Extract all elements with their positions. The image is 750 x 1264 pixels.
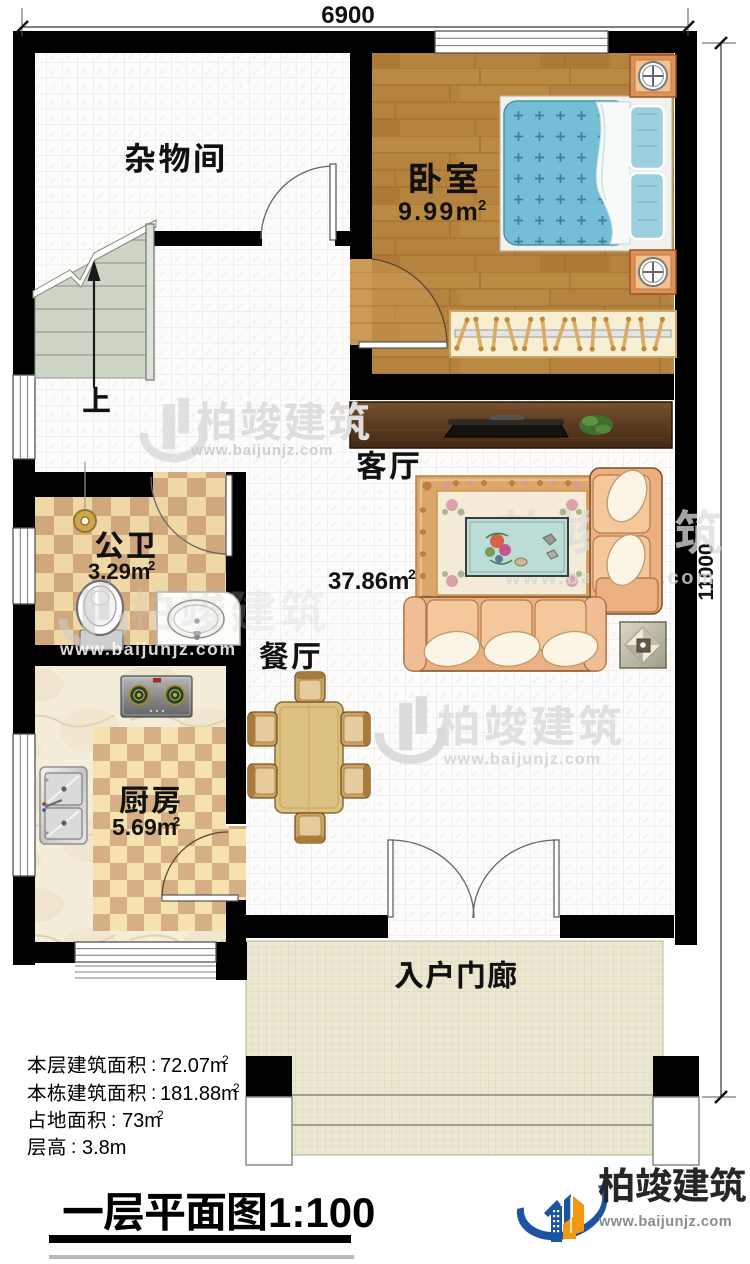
svg-text:6900: 6900	[321, 2, 374, 29]
svg-text:3.29m: 3.29m	[88, 559, 150, 584]
svg-text::: :	[111, 1110, 116, 1131]
svg-text::: :	[151, 1083, 156, 1104]
svg-text:2: 2	[173, 814, 180, 829]
svg-text::: :	[151, 1055, 156, 1076]
svg-text:2: 2	[408, 566, 416, 582]
svg-text:2: 2	[233, 1081, 240, 1095]
svg-text:72.07m: 72.07m	[160, 1055, 227, 1077]
svg-text::: :	[71, 1137, 76, 1158]
svg-text:3.8m: 3.8m	[82, 1137, 126, 1159]
svg-text:2: 2	[222, 1053, 229, 1067]
svg-text:www.baijunjz.com: www.baijunjz.com	[598, 1214, 732, 1230]
svg-text:2: 2	[478, 197, 486, 214]
svg-text:73m: 73m	[122, 1110, 161, 1132]
svg-text:181.88m: 181.88m	[160, 1083, 238, 1105]
svg-text:www.baijunjz.com: www.baijunjz.com	[59, 639, 237, 659]
svg-text:37.86m: 37.86m	[328, 568, 409, 595]
svg-text:www.baijunjz.com: www.baijunjz.com	[190, 442, 333, 459]
svg-text:9.99m: 9.99m	[398, 198, 480, 226]
svg-text:5.69m: 5.69m	[112, 814, 177, 840]
svg-text:2: 2	[157, 1108, 164, 1122]
svg-text:1:100: 1:100	[268, 1189, 375, 1236]
svg-text:2: 2	[148, 558, 155, 573]
svg-text:www.baijunjz.com: www.baijunjz.com	[443, 751, 601, 768]
